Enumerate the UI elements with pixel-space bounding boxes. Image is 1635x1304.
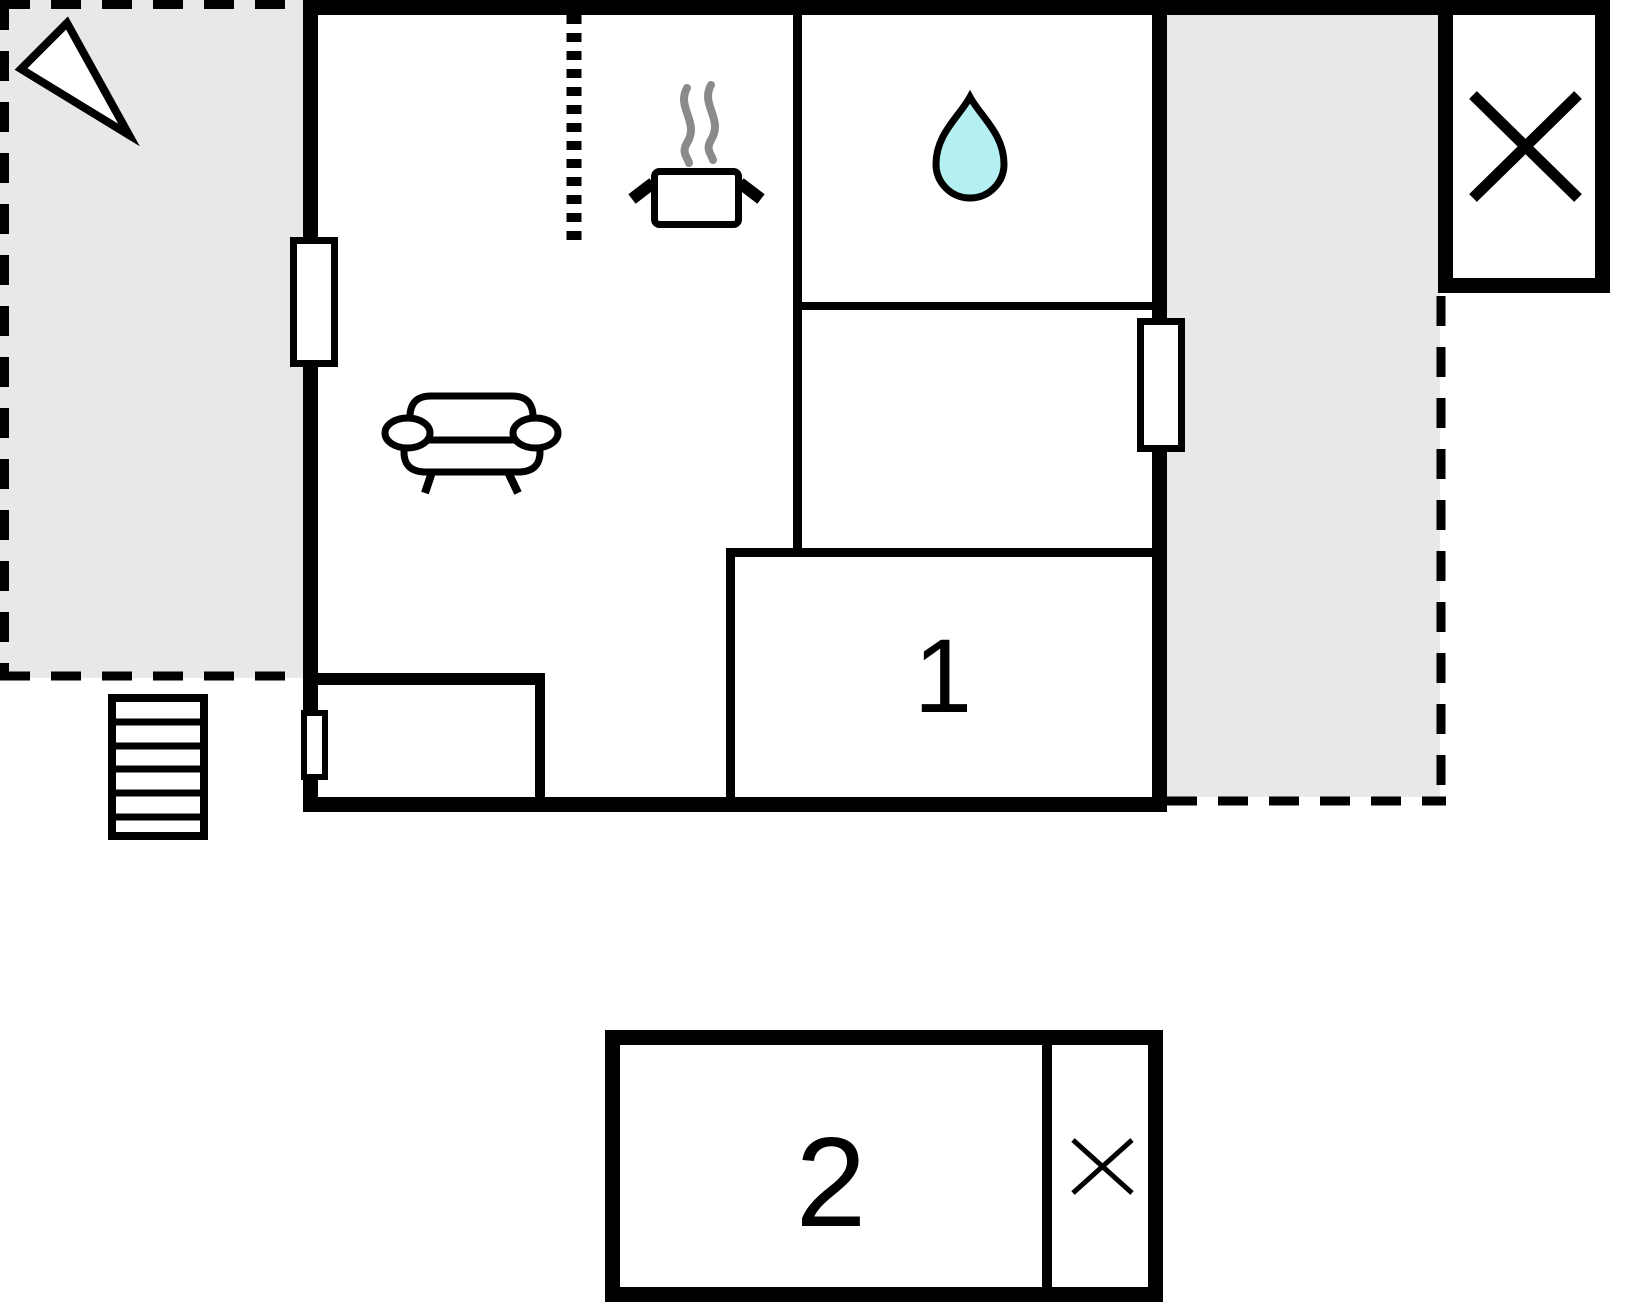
wall-room1-left: [726, 548, 735, 797]
sofa-armrest-left: [385, 418, 430, 448]
window-left-wall: [294, 241, 335, 364]
building-2-divider-wall: [1042, 1037, 1052, 1295]
wall-entry-room-top: [303, 673, 545, 685]
pot-body: [655, 172, 739, 225]
window-right-wall: [1141, 322, 1182, 449]
wall-entry-room-right: [535, 673, 545, 797]
room-2-label: 2: [796, 1111, 867, 1253]
wall-bathroom-bottom: [793, 302, 1152, 310]
terrace-left-floor: [0, 0, 303, 678]
wall-top: [303, 0, 1443, 15]
door-entry-left-wall: [304, 713, 325, 777]
building-2: [613, 1037, 1156, 1295]
wall-left: [303, 0, 318, 812]
sofa-armrest-right: [513, 418, 558, 448]
wall-bottom: [303, 797, 1167, 812]
stairs-icon: [110, 698, 206, 836]
annex-top-right: [1446, 8, 1603, 286]
building-2-walls: [613, 1038, 1156, 1295]
room-1-label: 1: [914, 618, 972, 735]
floorplan-page: 1 2: [0, 0, 1635, 1304]
wall-kitchen-bathroom: [793, 15, 802, 548]
terrace-left: [0, 0, 312, 678]
wall-room1-top: [726, 548, 1152, 557]
terrace-right-floor: [1167, 15, 1440, 797]
terrace-right: [1167, 15, 1446, 802]
